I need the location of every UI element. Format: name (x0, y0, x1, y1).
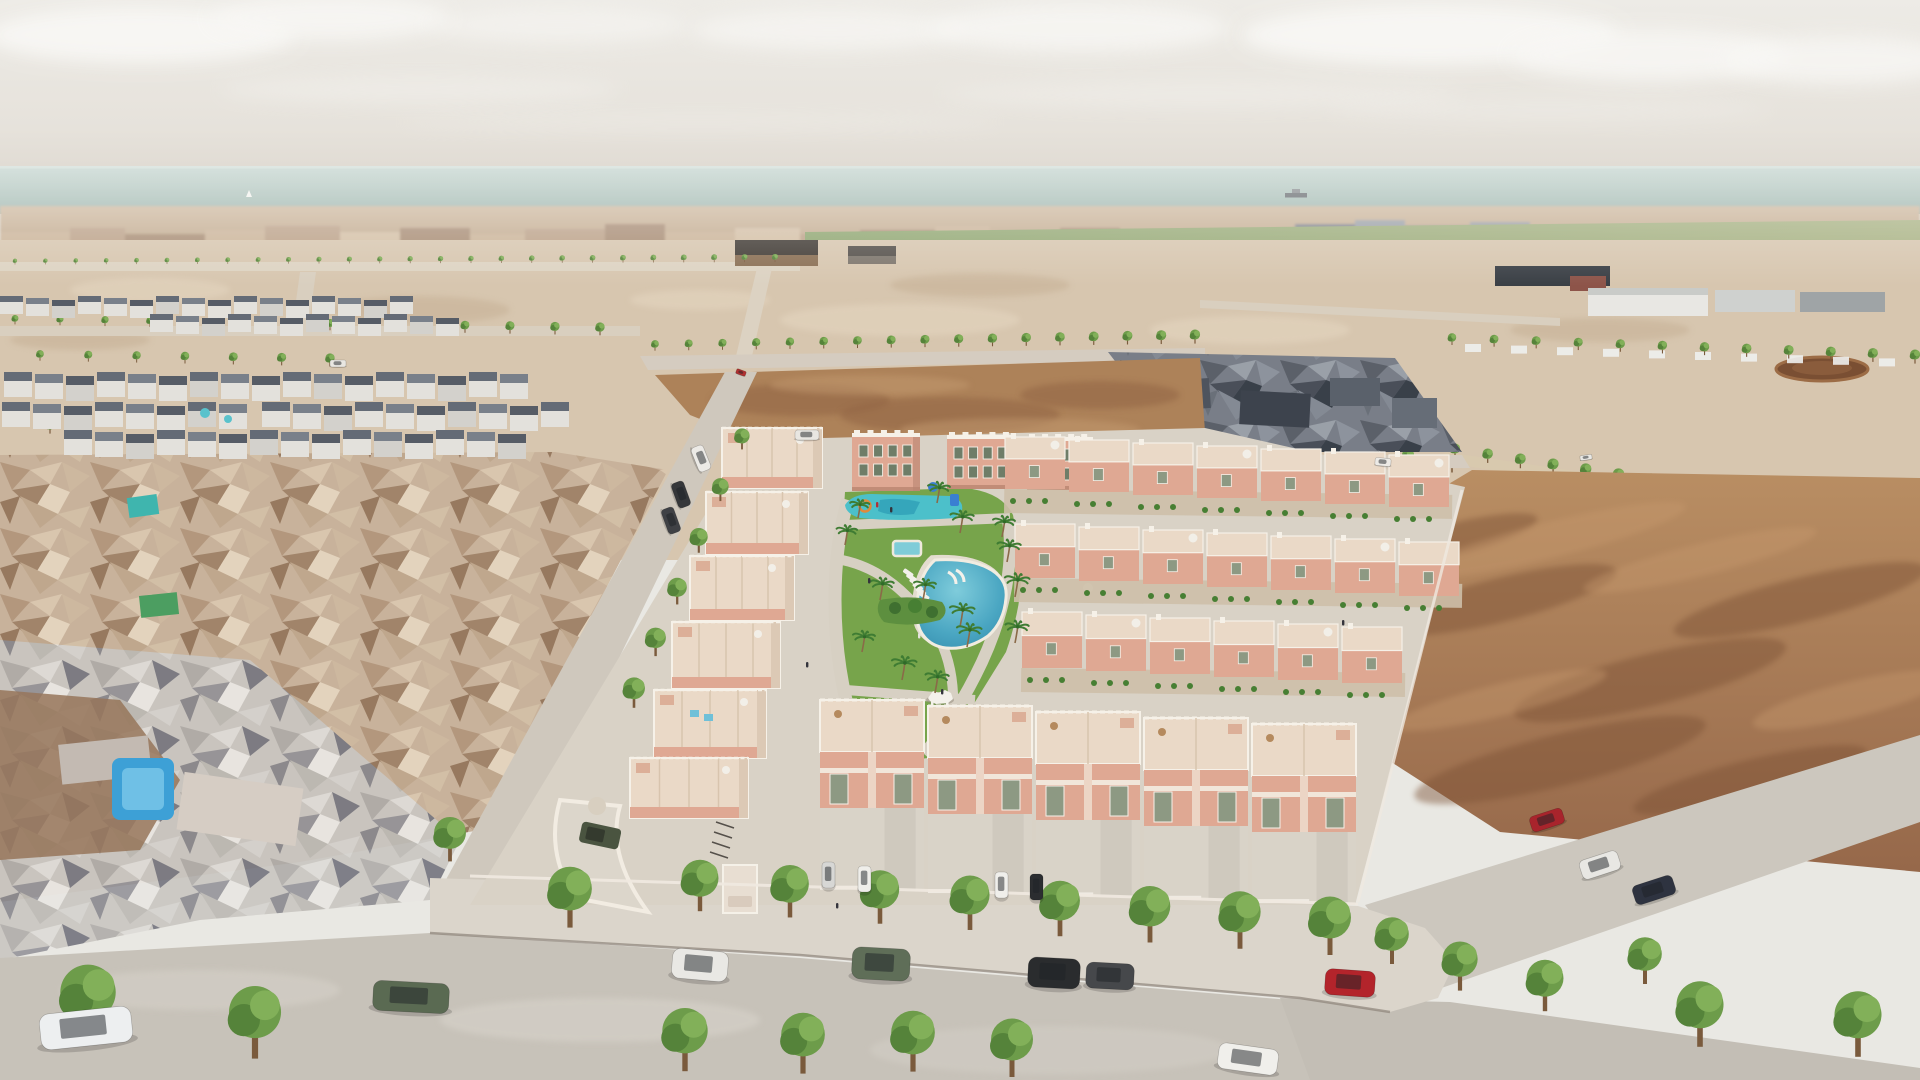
old-town-house (374, 441, 402, 457)
person (836, 903, 838, 909)
townhouse-south (1144, 718, 1248, 900)
garden-bush (1100, 590, 1106, 596)
old-town-roof (374, 432, 402, 441)
tree-canopy-light (1642, 940, 1661, 959)
window (938, 780, 956, 810)
tree-canopy-light (1025, 334, 1030, 339)
old-town-house (469, 381, 497, 397)
roof-stair (1120, 718, 1134, 728)
garden-bush (1299, 689, 1305, 695)
villa-chimney (1092, 611, 1097, 617)
road-patch (440, 998, 760, 1042)
old-town-roof (176, 316, 199, 322)
palm-crown (859, 503, 862, 506)
car-glass (1039, 963, 1066, 981)
tree-canopy-light (233, 353, 238, 358)
garden-bush (1244, 596, 1250, 602)
tree-canopy-light (697, 529, 707, 539)
roof-jacuzzi (704, 714, 713, 721)
garden-bush (1347, 692, 1353, 698)
old-town-roof (410, 316, 433, 322)
old-town-house (343, 439, 371, 455)
garden-bush (1180, 593, 1186, 599)
teal-tarp (127, 494, 159, 518)
garden-bush (1187, 683, 1193, 689)
villa-window (1366, 658, 1376, 670)
greenhouse-stall (1741, 354, 1757, 362)
old-town-roof (35, 374, 63, 383)
old-town-house (26, 304, 49, 316)
garden-bush (1356, 602, 1362, 608)
sand-mottle (780, 304, 1020, 336)
apartment-window (954, 447, 963, 459)
old-town-house (252, 385, 280, 401)
garden-bush (1020, 587, 1026, 593)
parapet-crenellation (1068, 434, 1074, 437)
villa-roof-terrace (1022, 612, 1082, 636)
villa-roof-terrace (1214, 621, 1274, 645)
old-town-house (221, 383, 249, 399)
tree-canopy-light (136, 352, 141, 357)
old-town-roof (2, 402, 30, 411)
greenhouse-stall (1603, 349, 1619, 357)
old-town-roof (332, 316, 355, 322)
tree-canopy-light (890, 336, 895, 341)
apartment-base (852, 487, 920, 491)
stair-tower (660, 695, 674, 705)
garden-bush (1123, 680, 1129, 686)
tree-canopy-light (1160, 331, 1166, 337)
old-town-roof (314, 374, 342, 383)
old-town-roof (355, 402, 383, 411)
roof-east-strip (739, 758, 748, 818)
atmospheric-haze (0, 166, 1920, 286)
old-town-roof (343, 430, 371, 439)
old-town-house (202, 324, 225, 336)
old-town-house (436, 439, 464, 455)
villa-window (1110, 646, 1120, 658)
old-town-house (281, 441, 309, 457)
car-glass (1378, 459, 1386, 464)
old-town-house (286, 306, 309, 318)
townhouse-facade (630, 807, 748, 818)
sand-mottle (1150, 316, 1350, 344)
bush (908, 599, 922, 613)
greenhouse-stall (1511, 346, 1527, 354)
old-town-house (467, 441, 495, 457)
tree-canopy-light (1194, 330, 1200, 336)
small-pool (893, 541, 921, 556)
tree-canopy-light (39, 351, 43, 355)
greenhouse-stall (1833, 357, 1849, 365)
bush (926, 606, 938, 618)
old-town-house (104, 304, 127, 316)
old-town-roof (541, 402, 569, 411)
garden-bush (1042, 498, 1048, 504)
palm-crown (903, 661, 907, 665)
tree-canopy-light (566, 870, 591, 895)
parapet-crenellation (1003, 432, 1009, 435)
tree-canopy-light (14, 316, 18, 320)
old-town-house (250, 439, 278, 455)
villa-window (1039, 554, 1049, 566)
tree-canopy-light (1914, 350, 1920, 356)
car-driveway-car (821, 862, 835, 892)
old-town-roof (376, 372, 404, 381)
villa-window (1295, 566, 1305, 578)
old-town-roof (286, 300, 309, 306)
garden-bush (1362, 513, 1368, 519)
window (1218, 792, 1236, 822)
palm-crown (938, 486, 941, 489)
palm-crown (1003, 520, 1006, 523)
villa-chimney (1331, 448, 1336, 454)
old-town-house (500, 383, 528, 399)
person (890, 507, 892, 513)
old-town-house (157, 439, 185, 455)
tree-canopy-light (1146, 889, 1169, 912)
small-pool (224, 415, 232, 423)
garden-bush (1308, 599, 1314, 605)
car-glass (800, 432, 812, 438)
car-glass (334, 361, 342, 365)
tree-canopy-light (654, 629, 666, 641)
old-town-roof (208, 300, 231, 306)
tree-canopy-light (741, 430, 750, 439)
old-town-roof (306, 314, 329, 320)
tree-canopy-light (1577, 338, 1582, 343)
facade-pillar (1192, 770, 1200, 826)
old-town-house (188, 441, 216, 457)
old-town-roof (312, 296, 335, 302)
car-driveway-car (857, 866, 871, 896)
apartment-window (954, 466, 963, 478)
old-town-house (95, 441, 123, 457)
roof-parasol (1381, 543, 1390, 552)
villa-chimney (1267, 445, 1272, 451)
garden-bush (1091, 680, 1097, 686)
old-town-roof (312, 434, 340, 443)
apartment-window (969, 466, 978, 478)
old-town-house (280, 324, 303, 336)
palm-crown (1016, 625, 1019, 628)
tree-canopy-light (909, 1014, 934, 1039)
tree-canopy-light (1854, 995, 1881, 1022)
villa-window (1302, 655, 1312, 667)
villa-window (1413, 484, 1423, 496)
old-town-house (312, 443, 340, 459)
villa-chimney (1139, 439, 1144, 445)
villa-window (1093, 469, 1103, 481)
old-town-roof (95, 432, 123, 441)
roof-east-strip (771, 622, 780, 688)
garden-bush (1106, 501, 1112, 507)
old-town-house (332, 322, 355, 334)
garden-bush (1340, 602, 1346, 608)
villa-chimney (1284, 620, 1289, 626)
window (1002, 780, 1020, 810)
garden-bush (1084, 590, 1090, 596)
old-town-roof (386, 404, 414, 413)
old-town-house (126, 413, 154, 429)
car-distant-white-car (329, 360, 347, 368)
tree-canopy-light (675, 579, 686, 590)
townhouse-block-west (654, 690, 766, 758)
villa-roof-terrace (1271, 536, 1331, 559)
villa-chimney (1011, 433, 1016, 439)
roof-east-strip (799, 492, 808, 554)
villa-window (1349, 481, 1359, 493)
villa-roof-terrace (1342, 627, 1402, 651)
old-town-house (386, 413, 414, 429)
old-town-roof (293, 404, 321, 413)
tree-canopy-light (1127, 332, 1133, 338)
tree-canopy-light (688, 340, 692, 344)
roof-parasol (1243, 450, 1252, 459)
old-town-roof (448, 402, 476, 411)
garden-bush (1164, 593, 1170, 599)
palm-crown (961, 608, 965, 612)
tree-canopy-light (1872, 349, 1878, 355)
old-town-house (219, 443, 247, 459)
garden-bush (1026, 498, 1032, 504)
entrance-sign (728, 896, 752, 907)
car-gray-sedan (1083, 962, 1137, 994)
old-town-house (219, 413, 247, 429)
townhouse-south (1036, 712, 1140, 896)
street-tree (1627, 937, 1661, 984)
person (876, 502, 878, 508)
old-town-roof (469, 372, 497, 381)
old-town-roof (254, 316, 277, 322)
roof-furniture (1158, 728, 1166, 736)
old-town-house (390, 302, 413, 314)
tree-canopy-light (632, 679, 644, 691)
townhouse-facade (722, 477, 822, 488)
villa-chimney (1277, 532, 1282, 538)
old-town-house (541, 411, 569, 427)
roof-parasol (754, 630, 762, 638)
tree-canopy-light (823, 338, 828, 343)
villa-chimney (1341, 535, 1346, 541)
old-town-house (52, 306, 75, 318)
garden-bush (1251, 686, 1257, 692)
townhouse-facade (654, 747, 766, 758)
garden-bush (1036, 587, 1042, 593)
dirt-mottle (1020, 381, 1180, 409)
parapet-crenellation (881, 430, 887, 433)
stair-tower (678, 627, 692, 637)
cloud (220, 76, 620, 104)
townhouse-south (820, 700, 924, 890)
old-town-roof (190, 372, 218, 381)
roof-parasol (1132, 619, 1141, 628)
garden-bush (1228, 596, 1234, 602)
palm-crown (924, 583, 927, 586)
old-town-house (293, 413, 321, 429)
garden-bush (1155, 683, 1161, 689)
stair-tower (636, 763, 650, 773)
garden-bush (1171, 683, 1177, 689)
garden-bush (1027, 677, 1033, 683)
facade-pillar (868, 752, 876, 808)
tree-canopy-light (1493, 335, 1498, 340)
old-town-house (228, 320, 251, 332)
townhouse-block-west (706, 492, 808, 554)
villa-roof-terrace (1207, 533, 1267, 556)
tree-canopy-light (104, 317, 108, 321)
tree-canopy-light (1487, 449, 1493, 455)
roof-furniture (768, 564, 776, 572)
tree-canopy-light (1788, 346, 1793, 351)
parapet-crenellation (867, 430, 873, 433)
white-warehouse-ridge (1588, 288, 1708, 295)
villa-window (1231, 563, 1241, 575)
apartment-window (874, 445, 883, 457)
old-town-house (364, 306, 387, 318)
tree-canopy-light (1236, 895, 1260, 919)
townhouse-block-west (672, 622, 780, 688)
person (1342, 620, 1344, 626)
villa-chimney (1348, 623, 1353, 629)
old-town-house (176, 322, 199, 334)
old-town-house (97, 381, 125, 397)
person (941, 689, 943, 695)
cloud (400, 112, 1000, 132)
apartment-window (983, 466, 992, 478)
old-town-roof (250, 430, 278, 439)
facade-pillar (1300, 776, 1308, 832)
parapet-crenellation (989, 432, 995, 435)
garden-bush (1394, 516, 1400, 522)
villa-chimney (1156, 614, 1161, 620)
roof-parasol (722, 766, 730, 774)
parapet-crenellation (908, 430, 914, 433)
old-town-house (2, 411, 30, 427)
old-town-house (64, 415, 92, 431)
car-glass (1336, 974, 1362, 990)
townhouse-facade (690, 609, 794, 620)
roof-stair (904, 706, 918, 716)
tree-canopy-light (1704, 343, 1709, 348)
tree-canopy-light (1451, 334, 1456, 339)
old-town-house (283, 381, 311, 397)
old-town-roof (219, 434, 247, 443)
tree-canopy-light (654, 341, 658, 345)
old-town-roof (66, 376, 94, 385)
window (1326, 798, 1344, 828)
old-town-house (306, 320, 329, 332)
villa-window (1029, 466, 1039, 478)
villa-window (1221, 475, 1231, 487)
old-town-roof (157, 430, 185, 439)
apartment-window (859, 464, 868, 476)
garden-bush (1059, 677, 1065, 683)
old-town-house (262, 411, 290, 427)
old-town-house (438, 385, 466, 401)
roof-parasol (1435, 459, 1444, 468)
garden-bush (1010, 498, 1016, 504)
old-town-house (324, 415, 352, 431)
old-town-house (498, 443, 526, 459)
old-town-roof (324, 406, 352, 415)
small-pool (200, 408, 210, 418)
roof-stair (1228, 724, 1242, 734)
old-town-roof (358, 318, 381, 324)
old-town-house (159, 385, 187, 401)
palm-crown (968, 628, 972, 632)
roof-furniture (834, 710, 842, 718)
garden-bush (1154, 504, 1160, 510)
apartment-window (969, 447, 978, 459)
driveway (1100, 820, 1131, 896)
old-town-roof (510, 406, 538, 415)
greenhouse-stall (1787, 355, 1803, 363)
old-town-roof (221, 374, 249, 383)
cloud (930, 4, 1230, 52)
old-town-roof (260, 298, 283, 304)
green-tarp (139, 592, 179, 618)
parapet-crenellation (894, 430, 900, 433)
splash-pool-deep (878, 499, 920, 515)
garden-bush (1116, 590, 1122, 596)
garden-bush (1379, 692, 1385, 698)
tree-canopy-light (681, 1012, 707, 1038)
old-town-house (182, 304, 205, 316)
old-town-house (410, 322, 433, 334)
person (918, 633, 920, 639)
roof-parasol (782, 500, 790, 508)
car-white-van (794, 430, 820, 441)
garden-bush (1436, 605, 1442, 611)
person (806, 662, 808, 668)
old-town-roof (97, 372, 125, 381)
apartment-shade (913, 433, 920, 491)
tree-canopy-light (958, 335, 963, 340)
garden-bush (1363, 692, 1369, 698)
old-town-roof (467, 432, 495, 441)
garden-bush (1404, 605, 1410, 611)
townhouse-block-west (630, 758, 748, 818)
old-town-house (95, 411, 123, 427)
old-town-roof (219, 404, 247, 413)
old-town-house (150, 320, 173, 332)
tree-canopy-light (1056, 884, 1079, 907)
roof-furniture (942, 716, 950, 724)
roof-furniture (1050, 722, 1058, 730)
tree-canopy-light (1746, 344, 1751, 349)
apartment-base (947, 485, 1015, 489)
greenhouse-stall (1557, 347, 1573, 355)
old-town-roof (64, 430, 92, 439)
old-town-roof (126, 404, 154, 413)
old-town-house (4, 381, 32, 397)
tree-canopy-light (876, 873, 898, 895)
old-town-house (254, 322, 277, 334)
old-town-roof (128, 374, 156, 383)
old-town-house (436, 324, 459, 336)
garden-bush (1298, 510, 1304, 516)
tree-canopy-light (281, 354, 286, 359)
tree-canopy-light (447, 820, 465, 838)
tree-canopy-light (1541, 963, 1562, 984)
villa-chimney (1149, 526, 1154, 532)
old-town-roof (228, 314, 251, 320)
old-town-roof (364, 300, 387, 306)
old-town-roof (345, 376, 373, 385)
old-town-roof (280, 318, 303, 324)
apartment-window (983, 447, 992, 459)
